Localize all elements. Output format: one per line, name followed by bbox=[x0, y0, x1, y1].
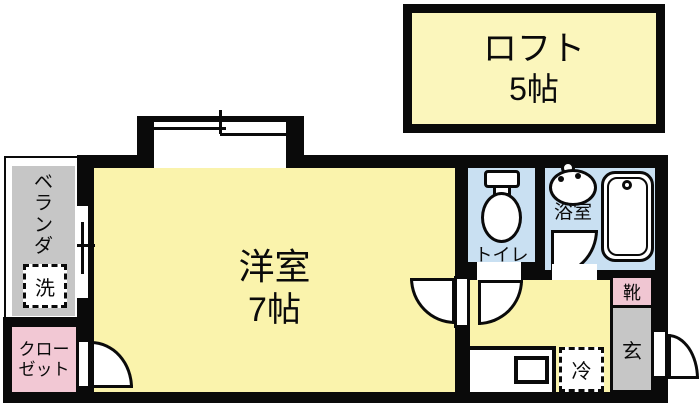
toilet-door-threshold bbox=[477, 262, 521, 280]
main-room-door-leaf bbox=[454, 276, 470, 328]
entrance-door-swing-arc bbox=[668, 334, 699, 379]
loft-room: ロフト 5帖 bbox=[403, 4, 665, 133]
closet-label-line1: クロー bbox=[19, 340, 70, 360]
balcony-window-tick bbox=[77, 244, 95, 247]
bathroom-door-threshold bbox=[552, 264, 597, 280]
floor-plan: ロフト 5帖 ベランダ 洗 洋室 7帖 クロー ゼット トイレ 浴室 bbox=[0, 0, 700, 406]
bathtub-drain-icon bbox=[622, 180, 632, 190]
washbasin-tap-dot-icon bbox=[558, 176, 564, 182]
bay-window-pane-line bbox=[220, 133, 286, 136]
loft-size: 5帖 bbox=[509, 70, 559, 108]
balcony-label: ベランダ bbox=[33, 172, 54, 257]
closet-label-line2: ゼット bbox=[19, 360, 70, 380]
loft-label: ロフト bbox=[483, 29, 585, 70]
main-room-size: 7帖 bbox=[94, 282, 455, 331]
entrance-label: 玄 bbox=[613, 308, 651, 390]
bathroom-label: 浴室 bbox=[545, 197, 601, 224]
shoe-cabinet: 靴 bbox=[613, 278, 651, 308]
entrance-block: 靴 玄 bbox=[610, 275, 654, 393]
refrigerator-box: 冷 bbox=[559, 347, 604, 392]
washbasin-tap-dot-icon bbox=[575, 173, 581, 179]
toilet-bowl-icon bbox=[481, 192, 522, 243]
bay-window-pane-line bbox=[154, 127, 226, 130]
balcony-window-pane-line bbox=[81, 222, 84, 274]
closet-door-leaf bbox=[76, 339, 91, 389]
bay-window-center-tick bbox=[219, 110, 222, 134]
entrance-door-leaf bbox=[651, 329, 668, 379]
closet-room: クロー ゼット bbox=[12, 327, 76, 392]
kitchen-sink-icon bbox=[514, 356, 549, 384]
washing-machine-box: 洗 bbox=[23, 264, 67, 308]
